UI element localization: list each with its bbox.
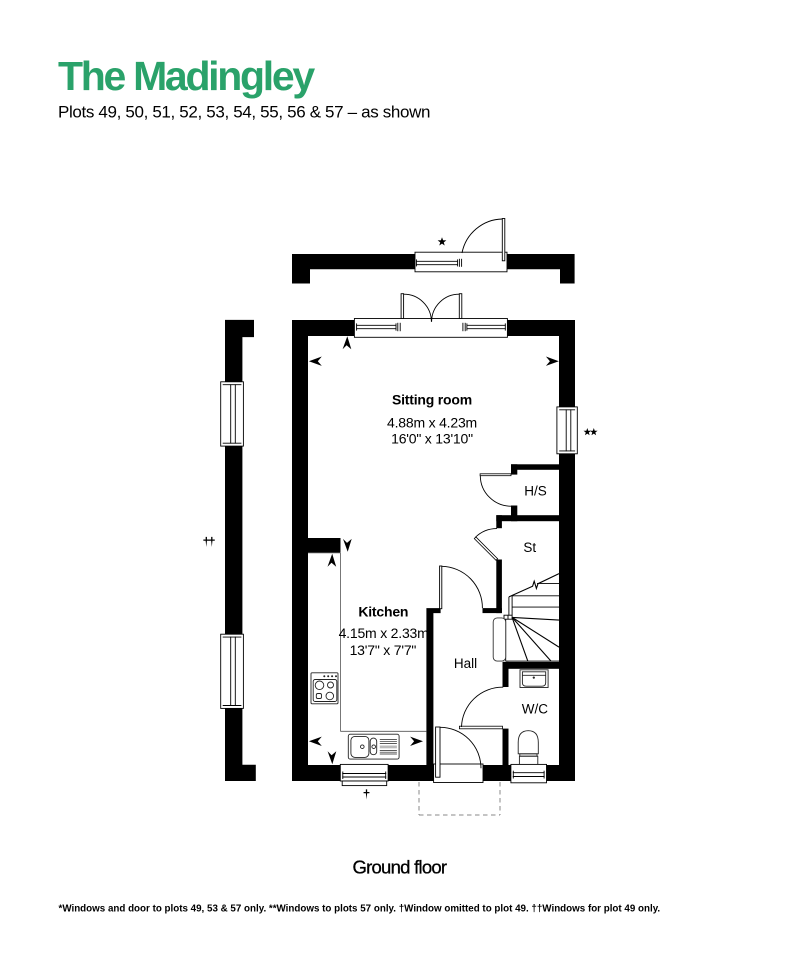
svg-text:Hall: Hall	[454, 656, 477, 671]
svg-text:W/C: W/C	[522, 701, 548, 716]
svg-text:St: St	[523, 540, 536, 555]
svg-text:Ground floor: Ground floor	[352, 857, 446, 878]
svg-text:Plots 49, 50, 51, 52, 53, 54,: Plots 49, 50, 51, 52, 53, 54, 55, 56 & 5…	[58, 103, 430, 122]
svg-text:13'7" x 7'7": 13'7" x 7'7"	[350, 642, 417, 658]
svg-text:16'0" x 13'10": 16'0" x 13'10"	[391, 431, 473, 447]
svg-text:Kitchen: Kitchen	[358, 603, 408, 619]
svg-text:Sitting room: Sitting room	[392, 392, 472, 408]
svg-text:The Madingley: The Madingley	[58, 53, 315, 99]
svg-text:*Windows and door to plots 49,: *Windows and door to plots 49, 53 & 57 o…	[59, 904, 661, 915]
svg-text:4.88m x 4.23m: 4.88m x 4.23m	[387, 415, 477, 431]
svg-text:H/S: H/S	[524, 483, 547, 498]
svg-text:4.15m x 2.33m: 4.15m x 2.33m	[339, 625, 429, 641]
